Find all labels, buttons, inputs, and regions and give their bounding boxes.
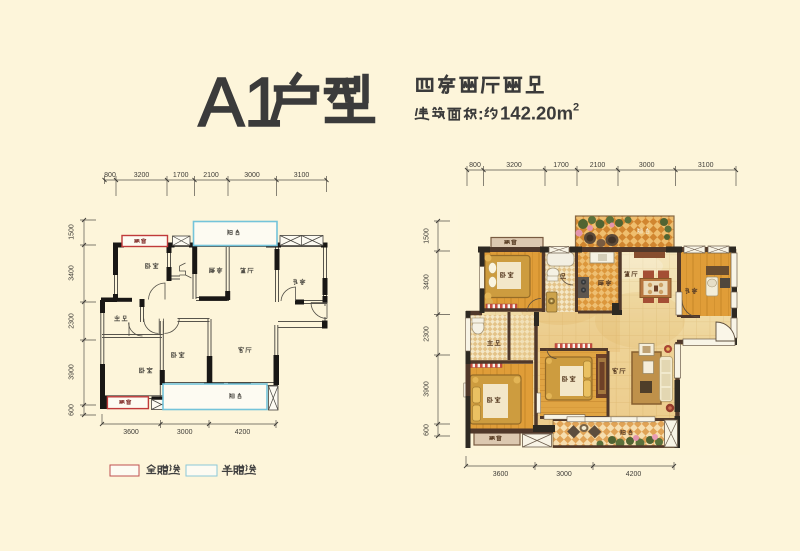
svg-text:A1: A1 xyxy=(198,63,282,141)
svg-text::: : xyxy=(478,105,484,124)
svg-text:2: 2 xyxy=(573,102,579,114)
svg-text:1700: 1700 xyxy=(553,162,569,169)
svg-text:3400: 3400 xyxy=(69,265,76,281)
svg-text:2100: 2100 xyxy=(590,162,606,169)
svg-text:3200: 3200 xyxy=(506,162,522,169)
svg-text:3600: 3600 xyxy=(493,471,509,478)
svg-text:3900: 3900 xyxy=(69,364,76,380)
svg-text:3900: 3900 xyxy=(424,381,431,397)
svg-text:3400: 3400 xyxy=(424,274,431,290)
svg-text:3600: 3600 xyxy=(123,429,139,436)
svg-text:4200: 4200 xyxy=(235,429,251,436)
svg-text:4200: 4200 xyxy=(626,471,642,478)
svg-text:142.20m: 142.20m xyxy=(500,103,573,124)
svg-text:3200: 3200 xyxy=(134,172,150,179)
svg-text:1500: 1500 xyxy=(69,224,76,240)
svg-text:800: 800 xyxy=(104,172,116,179)
svg-text:2100: 2100 xyxy=(203,172,219,179)
svg-text:3100: 3100 xyxy=(294,172,310,179)
svg-text:1500: 1500 xyxy=(424,228,431,244)
svg-text:800: 800 xyxy=(469,162,481,169)
svg-text:2300: 2300 xyxy=(69,313,76,329)
svg-text:3000: 3000 xyxy=(244,172,260,179)
svg-text:3100: 3100 xyxy=(698,162,714,169)
svg-text:1700: 1700 xyxy=(173,172,189,179)
svg-text:3000: 3000 xyxy=(639,162,655,169)
svg-text:3000: 3000 xyxy=(177,429,193,436)
svg-text:600: 600 xyxy=(69,404,76,416)
svg-text:2300: 2300 xyxy=(424,326,431,342)
svg-text:3000: 3000 xyxy=(556,471,572,478)
svg-text:600: 600 xyxy=(424,424,431,436)
